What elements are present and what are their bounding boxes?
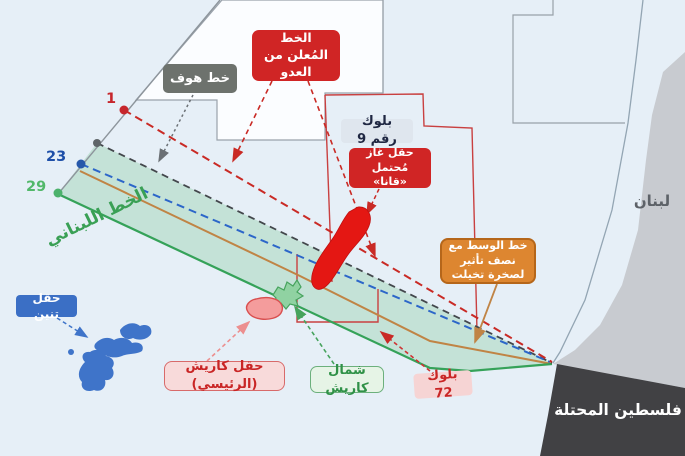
block72-label: بلوك 72 — [413, 370, 473, 399]
north-karish-label: شمال كاريش — [310, 366, 384, 393]
tanin-field-label: حقل تنين — [16, 295, 77, 317]
point-29-number: 29 — [26, 179, 46, 195]
point-23-number: 23 — [46, 149, 66, 165]
hof-line-label: خط هوف — [163, 64, 237, 93]
palestine-region-label: فلسطين المحتلة — [553, 400, 683, 421]
maritime-border-map: الخط المُعلن من العدو خط هوف بلوك رقم 9 … — [0, 0, 685, 456]
block9-label: بلوك رقم 9 — [341, 119, 413, 143]
enemy-declared-line-label: الخط المُعلن من العدو — [252, 30, 340, 81]
point-1-dot — [120, 106, 129, 115]
point-23-dot — [77, 160, 86, 169]
qana-field-label: حقل غاز مُحتمل «قانا» — [349, 148, 431, 188]
hof-origin-dot — [93, 139, 101, 147]
midline-label: خط الوسط مع نصف تأثير لصخرة تخيلت — [440, 238, 536, 284]
karish-field-blob — [247, 298, 283, 320]
point-1-number: 1 — [106, 91, 116, 107]
lebanon-region-label: لبنان — [626, 191, 678, 211]
point-29-dot — [54, 189, 63, 198]
karish-field-label: حقل كاريش (الرئيسي) — [164, 361, 285, 391]
